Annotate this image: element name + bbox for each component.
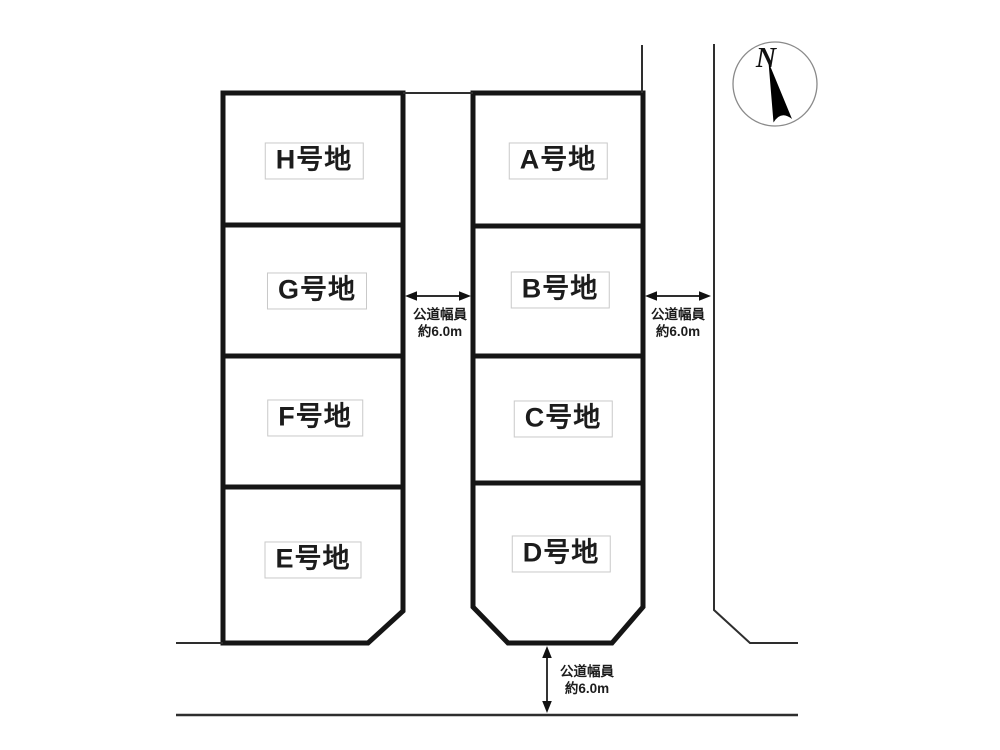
center-road-width-note: 公道幅員 約6.0m — [413, 306, 467, 340]
south-road-width-note: 公道幅員 約6.0m — [560, 663, 614, 697]
east-road-width-note-line2: 約6.0m — [651, 323, 705, 340]
lot-label-C: C号地 — [514, 400, 613, 437]
center-road-width-note-line1: 公道幅員 — [413, 306, 467, 323]
east-road-width-note-line1: 公道幅員 — [651, 306, 705, 323]
lot-label-B: B号地 — [511, 271, 610, 308]
lot-label-F: F号地 — [267, 399, 363, 436]
lot-label-H: H号地 — [265, 142, 364, 179]
east-road-width-note: 公道幅員 約6.0m — [651, 306, 705, 340]
lot-label-D: D号地 — [512, 535, 611, 572]
compass: N — [733, 42, 817, 126]
south-road-width-note-line2: 約6.0m — [560, 680, 614, 697]
south-road-width-arrow — [542, 646, 552, 713]
lot-label-A: A号地 — [509, 142, 608, 179]
compass-north-label: N — [755, 43, 778, 74]
east-road-width-arrow — [645, 291, 711, 301]
south-road-width-note-line1: 公道幅員 — [560, 663, 614, 680]
lot-map: N H号地 G号地 F号地 E号地 A号地 B号地 C号地 D号地 公道幅員 約… — [0, 0, 1000, 750]
center-road-width-arrow — [405, 291, 471, 301]
lot-label-E: E号地 — [264, 541, 361, 578]
lot-label-G: G号地 — [267, 272, 367, 309]
center-road-width-note-line2: 約6.0m — [413, 323, 467, 340]
east-road-east-line — [714, 44, 798, 643]
lot-map-drawing: N — [0, 0, 1000, 750]
